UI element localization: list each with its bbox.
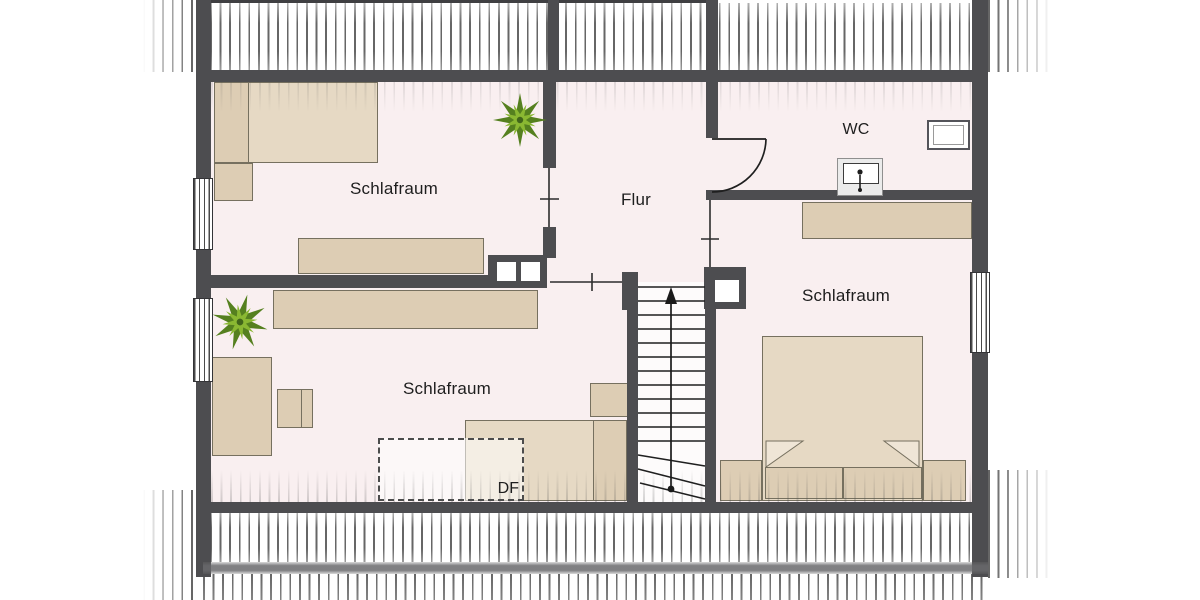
roof-hatch-top-left-fade bbox=[143, 0, 196, 72]
bed-single-bottom-pillow bbox=[593, 420, 627, 501]
wall-bottom bbox=[196, 502, 988, 513]
nightstand-right-room-left bbox=[720, 460, 762, 501]
nightstand-right-room-right bbox=[923, 460, 966, 501]
chimney-flue bbox=[715, 280, 739, 302]
washbasin bbox=[837, 158, 883, 196]
stairwell-floor bbox=[638, 282, 705, 502]
wall-hallway-left-upper bbox=[543, 82, 556, 168]
wall-right-lower bbox=[972, 353, 988, 577]
nightstand-top-left bbox=[214, 163, 253, 201]
nightstand-bottom-left bbox=[590, 383, 629, 417]
room-label-bedroom-right: Schlafraum bbox=[802, 286, 890, 306]
floor-plan: DF bbox=[0, 0, 1200, 600]
wall-left-lower bbox=[196, 382, 211, 577]
dormer-wall-right bbox=[706, 0, 718, 70]
ridge-line bbox=[210, 0, 718, 3]
dresser-right-room bbox=[802, 202, 972, 239]
window-right bbox=[970, 272, 990, 353]
window-left-upper bbox=[193, 178, 213, 250]
roof-window-label: DF bbox=[498, 480, 519, 498]
wardrobe-bottom-left bbox=[273, 290, 538, 329]
chimney-flue bbox=[521, 262, 540, 281]
roof-window-dashed-outline: DF bbox=[378, 438, 524, 501]
desk bbox=[212, 357, 272, 456]
roof-hatch-bottom-right-fade bbox=[988, 470, 1052, 578]
roof-hatch-bottom bbox=[210, 513, 972, 562]
roof-hatch-top-right-fade bbox=[988, 0, 1052, 72]
chimney-flue bbox=[497, 262, 516, 281]
bed-double-pillow-left bbox=[765, 467, 843, 499]
room-label-wc: WC bbox=[842, 121, 869, 139]
bed-single-top-pillow bbox=[214, 82, 249, 163]
chair-seat bbox=[277, 389, 302, 428]
wall-left-rooms-divider bbox=[196, 275, 490, 288]
chimney-double bbox=[488, 255, 547, 288]
chair-back bbox=[301, 389, 313, 428]
roof-hatch-bottom-edge bbox=[203, 574, 988, 600]
wall-left-upper bbox=[196, 0, 211, 178]
room-label-bedroom-top-left: Schlafraum bbox=[350, 179, 438, 199]
room-label-hallway: Flur bbox=[621, 190, 651, 210]
wall-wc-left bbox=[706, 82, 718, 138]
bed-double-pillow-right bbox=[843, 467, 922, 499]
wall-left-middle bbox=[196, 250, 211, 298]
wall-stair-left bbox=[627, 272, 638, 502]
window-left-lower bbox=[193, 298, 213, 382]
roof-window-wc-inner bbox=[933, 125, 964, 145]
wall-hallway-left-lower bbox=[543, 227, 556, 258]
wall-right-upper bbox=[972, 0, 988, 272]
dresser-top-left bbox=[298, 238, 484, 274]
washbasin-bowl bbox=[843, 163, 879, 184]
roof-hatch-top bbox=[210, 3, 972, 70]
chimney-stairs bbox=[704, 267, 746, 309]
roof-window-wc bbox=[927, 120, 970, 150]
wall-stair-right bbox=[705, 309, 716, 502]
wall-top bbox=[196, 70, 988, 82]
eaves-line bbox=[203, 562, 988, 574]
dormer-wall-left bbox=[548, 0, 559, 70]
room-label-bedroom-bottom-left: Schlafraum bbox=[403, 379, 491, 399]
roof-hatch-bottom-left-fade bbox=[143, 490, 196, 600]
